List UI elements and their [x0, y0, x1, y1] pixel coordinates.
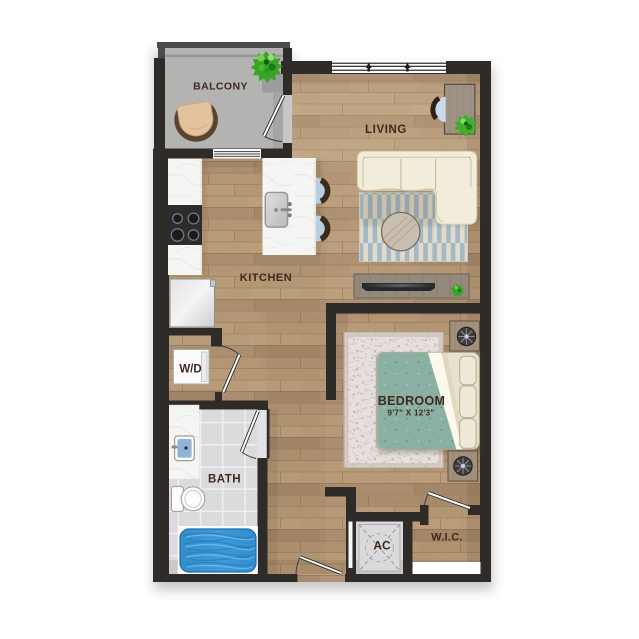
- svg-text:BALCONY: BALCONY: [193, 81, 248, 93]
- svg-text:9'7" X 12'3": 9'7" X 12'3": [387, 409, 434, 418]
- svg-text:W/D: W/D: [179, 364, 201, 376]
- svg-text:AC: AC: [373, 539, 391, 553]
- svg-text:BATH: BATH: [208, 474, 241, 486]
- svg-text:W.I.C.: W.I.C.: [431, 532, 463, 544]
- svg-text:KITCHEN: KITCHEN: [240, 272, 292, 284]
- svg-text:BEDROOM: BEDROOM: [378, 394, 445, 408]
- svg-text:LIVING: LIVING: [365, 124, 407, 136]
